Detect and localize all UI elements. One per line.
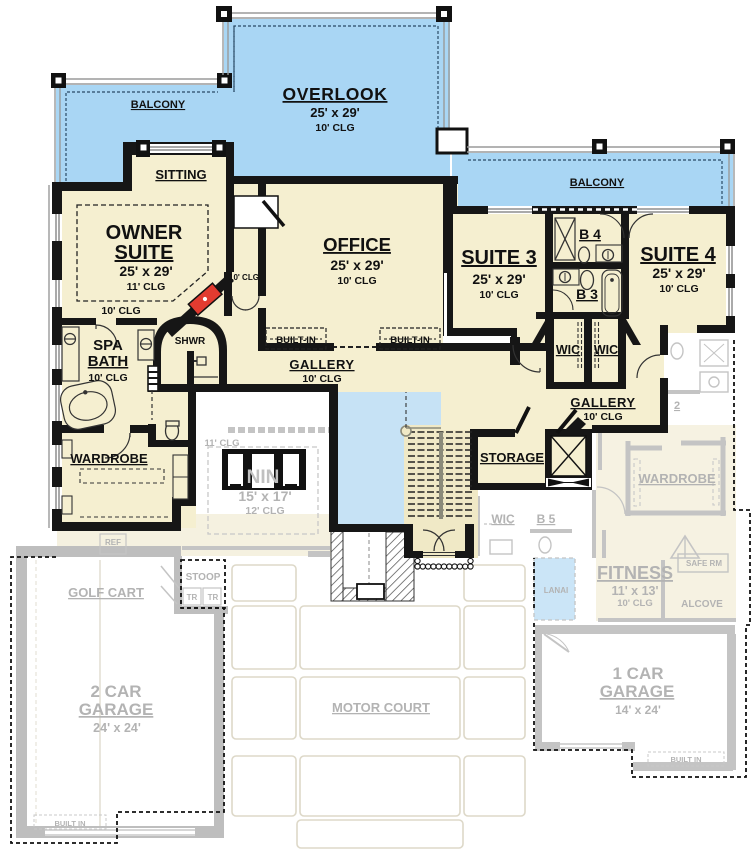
svg-text:SPA: SPA <box>93 337 123 354</box>
svg-text:10' CLG: 10' CLG <box>88 372 127 384</box>
svg-text:SITTING: SITTING <box>155 167 206 182</box>
svg-text:15' x 17': 15' x 17' <box>238 488 291 504</box>
svg-text:10' CLG: 10' CLG <box>229 273 259 282</box>
svg-text:MOTOR COURT: MOTOR COURT <box>332 700 430 715</box>
svg-text:REF: REF <box>105 538 121 547</box>
svg-text:TR: TR <box>187 593 198 602</box>
svg-text:10' CLG: 10' CLG <box>315 122 354 134</box>
svg-text:WARDROBE: WARDROBE <box>70 451 148 466</box>
svg-text:25' x 29': 25' x 29' <box>652 265 705 281</box>
svg-text:25' x 29': 25' x 29' <box>330 257 383 273</box>
svg-text:SUITE 3: SUITE 3 <box>461 247 537 269</box>
svg-text:NIN: NIN <box>247 467 280 488</box>
svg-text:BALCONY: BALCONY <box>570 177 625 189</box>
svg-text:SUITE 4: SUITE 4 <box>640 244 716 266</box>
svg-text:ALCOVE: ALCOVE <box>681 599 723 610</box>
svg-text:BUILT IN: BUILT IN <box>54 819 85 828</box>
svg-text:TR: TR <box>208 593 219 602</box>
svg-text:25' x 29': 25' x 29' <box>472 271 525 287</box>
svg-text:10' CLG: 10' CLG <box>583 411 622 423</box>
svg-text:WIC: WIC <box>556 343 580 357</box>
svg-text:2 CAR: 2 CAR <box>90 682 141 701</box>
svg-text:2: 2 <box>674 400 680 412</box>
svg-text:24' x 24': 24' x 24' <box>93 721 141 735</box>
svg-text:WIC: WIC <box>491 512 515 526</box>
svg-text:GARAGE: GARAGE <box>600 682 675 701</box>
svg-text:B 4: B 4 <box>579 226 601 242</box>
svg-text:BUILT IN: BUILT IN <box>670 755 701 764</box>
svg-text:GARAGE: GARAGE <box>79 700 154 719</box>
svg-text:B 3: B 3 <box>576 286 598 302</box>
svg-text:10' CLG: 10' CLG <box>479 289 518 301</box>
svg-text:12' CLG: 12' CLG <box>245 505 284 517</box>
svg-text:B 5: B 5 <box>537 512 556 526</box>
svg-text:BALCONY: BALCONY <box>131 99 186 111</box>
svg-text:BUILT-IN: BUILT-IN <box>390 335 430 346</box>
svg-text:BATH: BATH <box>88 353 129 370</box>
svg-text:25' x 29': 25' x 29' <box>119 263 172 279</box>
svg-text:14' x 24': 14' x 24' <box>615 703 661 717</box>
svg-text:GALLERY: GALLERY <box>570 395 635 410</box>
svg-text:WIC: WIC <box>594 343 618 357</box>
svg-text:OVERLOOK: OVERLOOK <box>283 84 388 104</box>
svg-text:25' x 29': 25' x 29' <box>310 105 360 120</box>
svg-text:GOLF CART: GOLF CART <box>68 585 144 600</box>
svg-text:STOOP: STOOP <box>186 572 221 583</box>
svg-text:SHWR: SHWR <box>175 336 206 347</box>
svg-text:10' CLG: 10' CLG <box>337 275 376 287</box>
svg-text:10' CLG: 10' CLG <box>302 373 341 385</box>
svg-text:1 CAR: 1 CAR <box>612 664 663 683</box>
svg-text:OFFICE: OFFICE <box>323 234 391 255</box>
svg-text:10' CLG: 10' CLG <box>101 305 140 317</box>
svg-text:SAFE RM: SAFE RM <box>686 559 722 568</box>
svg-text:10' CLG: 10' CLG <box>659 283 698 295</box>
svg-text:OWNER: OWNER <box>106 222 183 244</box>
svg-text:GALLERY: GALLERY <box>289 357 354 372</box>
svg-text:FITNESS: FITNESS <box>597 563 673 583</box>
svg-text:11' CLG: 11' CLG <box>205 438 240 449</box>
svg-text:WARDROBE: WARDROBE <box>638 471 716 486</box>
svg-text:LANAI: LANAI <box>544 586 568 595</box>
svg-text:11' x 13': 11' x 13' <box>612 584 659 598</box>
svg-text:BUILT-IN: BUILT-IN <box>276 335 316 346</box>
svg-text:STORAGE: STORAGE <box>480 450 544 465</box>
svg-text:11' CLG: 11' CLG <box>127 281 166 293</box>
svg-text:SUITE: SUITE <box>115 242 174 264</box>
svg-text:10' CLG: 10' CLG <box>617 598 653 609</box>
